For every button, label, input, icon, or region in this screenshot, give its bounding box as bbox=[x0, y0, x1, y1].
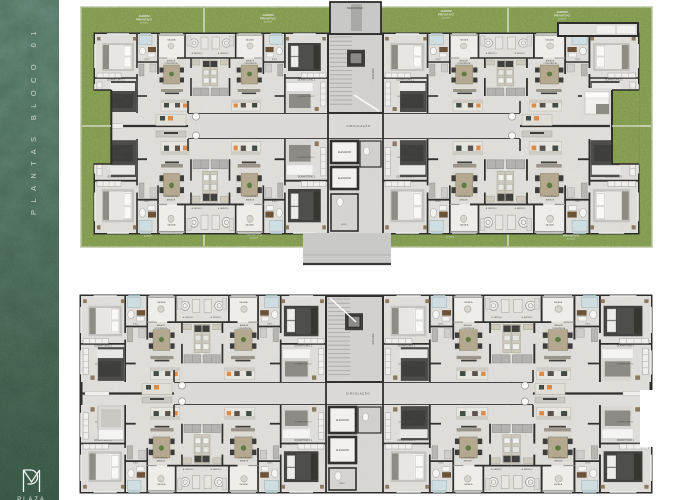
svg-text:42,70m²: 42,70m² bbox=[264, 21, 272, 24]
svg-text:MEDIDORES: MEDIDORES bbox=[347, 6, 363, 10]
svg-text:PRIVATIVO: PRIVATIVO bbox=[554, 13, 571, 17]
svg-text:42,70m²: 42,70m² bbox=[442, 17, 450, 20]
svg-text:42,70m²: 42,70m² bbox=[250, 237, 258, 240]
svg-text:PRIVATIVO: PRIVATIVO bbox=[260, 16, 277, 20]
svg-text:PRIVATIVO: PRIVATIVO bbox=[136, 17, 153, 21]
svg-text:42,70m²: 42,70m² bbox=[567, 238, 575, 241]
svg-text:42,70m²: 42,70m² bbox=[144, 235, 152, 238]
svg-text:42,70m²: 42,70m² bbox=[446, 236, 454, 239]
svg-text:42,70m²: 42,70m² bbox=[140, 22, 148, 25]
svg-text:PLANTAS BLOCO 01: PLANTAS BLOCO 01 bbox=[29, 24, 38, 215]
svg-text:42,70m²: 42,70m² bbox=[558, 18, 566, 21]
svg-text:PRIVATIVO: PRIVATIVO bbox=[438, 12, 455, 16]
